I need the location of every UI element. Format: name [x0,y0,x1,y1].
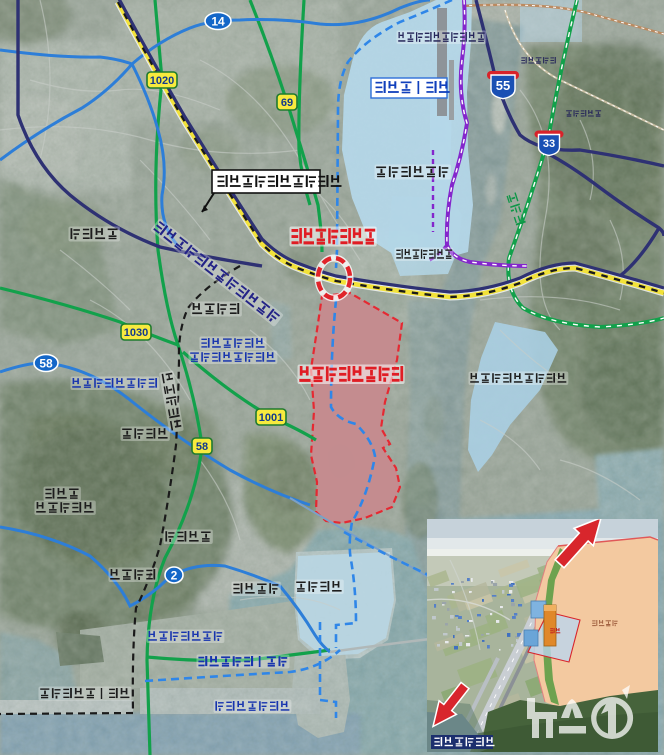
svg-text:1020: 1020 [150,75,174,87]
svg-text:55: 55 [496,78,510,93]
svg-text:14: 14 [211,14,225,28]
svg-text:58: 58 [196,441,208,453]
svg-text:2: 2 [171,568,178,582]
svg-text:58: 58 [39,356,53,370]
svg-text:1030: 1030 [124,327,148,339]
svg-text:33: 33 [543,138,555,150]
svg-text:69: 69 [281,97,293,109]
svg-text:1001: 1001 [259,412,283,424]
